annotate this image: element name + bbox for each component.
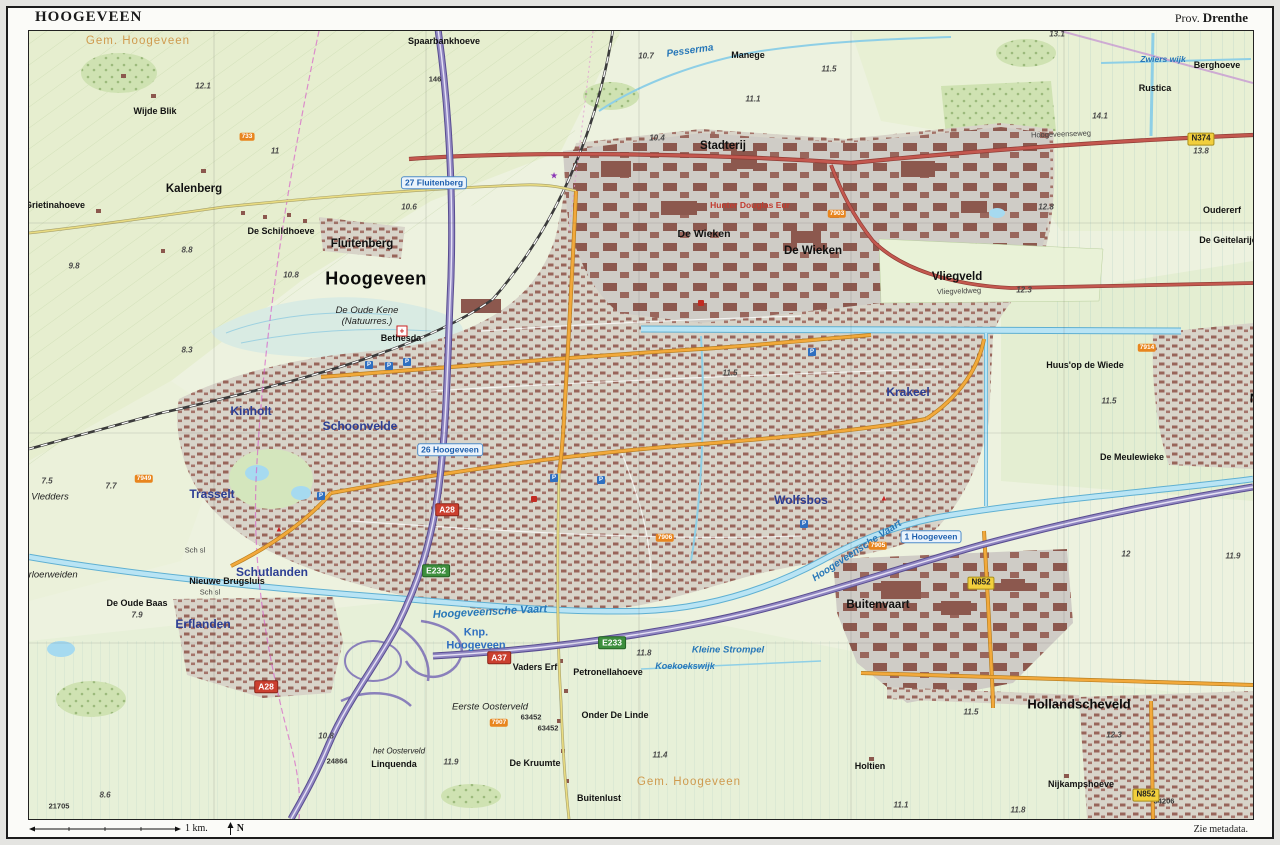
map-label-63452: 63452 <box>538 724 559 733</box>
map-label-kalenberg: Kalenberg <box>166 183 222 195</box>
road-shield-n374: N374 <box>1187 133 1214 146</box>
map-icon-poi <box>698 300 704 306</box>
map-icon-museum: ★ <box>550 171 558 182</box>
map-label-13-8: 13.8 <box>1193 147 1209 156</box>
map-label-schoonvelde: Schoonvelde <box>323 419 398 433</box>
map-label-holtien: Holtien <box>855 761 886 771</box>
road-shield-e233: E233 <box>598 636 626 649</box>
map-label-11-8: 11.8 <box>1011 806 1026 815</box>
map-label-trasselt: Trasselt <box>189 487 234 501</box>
map-icon-parking: P <box>808 348 816 356</box>
map-icon-camping: ▲ <box>880 494 888 503</box>
road-shield-7905: 7905 <box>869 542 887 550</box>
map-label-7-9: 7.9 <box>131 611 142 620</box>
map-label-9-8: 9.8 <box>68 262 79 271</box>
map-label-wolfsbos: Wolfsbos <box>774 493 828 507</box>
map-label-eerste-oosterveld: Eerste Oosterveld <box>452 703 528 714</box>
map-label-wijde-blik: Wijde Blik <box>134 106 177 116</box>
road-shield-7907: 7907 <box>490 719 508 727</box>
map-label-manege: Manege <box>731 50 765 60</box>
page-title: HOOGEVEEN <box>35 9 142 26</box>
map-label-nieuwe-brugsluis: Nieuwe Brugsluis <box>189 576 265 586</box>
map-label-hoogeveenseweg: Hoogeveenseweg <box>1031 128 1091 139</box>
north-arrow: N <box>226 822 244 835</box>
map-label-10-8: 10.8 <box>318 732 334 741</box>
map-label-arloerweiden: Arloerweiden <box>28 571 78 582</box>
map-label-12: 12 <box>1122 550 1131 559</box>
map-label-8-8: 8.8 <box>181 246 192 255</box>
road-shield-26-hoogeveen: 26 Hoogeveen <box>417 443 483 456</box>
map-label-stadterij: Stadterij <box>700 140 746 152</box>
road-shield-n852: N852 <box>1132 789 1159 802</box>
road-shield-7906: 7906 <box>656 534 674 542</box>
map-label-vledders: Vledders <box>31 493 69 504</box>
road-shield-1-hoogeveen: 1 Hoogeveen <box>901 530 962 543</box>
map-label-vliegveld: Vliegveld <box>932 271 983 283</box>
road-shield-7914: 7914 <box>1138 344 1156 352</box>
map-label-kleine-strompel: Kleine Strompel <box>692 645 764 656</box>
province-label: Prov. Drenthe <box>1175 10 1248 26</box>
map-label-gem-hoogeveen: Gem. Hoogeveen <box>86 35 190 47</box>
map-label-gem-hoogeveen: Gem. Hoogeveen <box>637 776 741 788</box>
map-label-vliegveldweg: Vliegveldweg <box>937 286 981 297</box>
map-label-huus-op-de-wiede: Huus'op de Wiede <box>1046 360 1124 370</box>
map-label-grietinahoeve: Grietinahoeve <box>28 200 85 210</box>
map-label-10-6: 10.6 <box>401 203 417 212</box>
map-label-de-kruumte: De Kruumte <box>509 758 560 768</box>
map-label-de-meulewieke: De Meulewieke <box>1100 452 1164 462</box>
map-label-koekoekswijk: Koekoekswijk <box>655 661 715 671</box>
province-name: Drenthe <box>1203 10 1248 25</box>
map-label-10-4: 10.4 <box>649 134 665 143</box>
map-label-schutlanden: Schutlanden <box>236 565 308 579</box>
map-icon-parking: P <box>385 362 393 370</box>
scale-bar: 1 km. N <box>29 822 244 835</box>
map-label-11-8: 11.8 <box>637 649 652 658</box>
map-label-petronellahoeve: Petronellahoeve <box>573 667 643 677</box>
scale-bar-line <box>29 824 181 834</box>
map-label-11-5: 11.5 <box>1102 397 1117 406</box>
map-label-24864: 24864 <box>327 757 348 766</box>
map-label-hoogeveensche-vaart: Hoogeveensche Vaart <box>432 603 547 621</box>
map-label-11-4: 11.4 <box>653 751 668 760</box>
map-label-12-3: 12.3 <box>1106 731 1122 740</box>
map-label-11-5: 11.5 <box>964 708 979 717</box>
map-label-11-5: 11.5 <box>822 65 837 74</box>
map-label-onder-de-linde: Onder De Linde <box>581 710 648 720</box>
road-shield-7949: 7949 <box>135 475 153 483</box>
scale-label: 1 km. <box>185 823 208 834</box>
road-shield-733: 733 <box>240 133 255 141</box>
map-label-de-oude-kene: De Oude Kene(Natuurres.) <box>336 306 399 328</box>
road-shield-a28: A28 <box>435 503 459 516</box>
map-icon-poi <box>531 496 537 502</box>
map-icon-parking: P <box>365 361 373 369</box>
map-label-146: 146 <box>429 75 442 84</box>
road-shield-a28: A28 <box>254 680 278 693</box>
map-label-63452: 63452 <box>521 713 542 722</box>
map-label-21705: 21705 <box>49 802 70 811</box>
map-label-de-wieken: De Wieken <box>784 245 842 257</box>
map-label-fluitenberg: Fluitenberg <box>331 238 394 250</box>
north-arrow-icon <box>226 822 235 835</box>
map-label-hoogeveensche-vaart: Hoogeveensche Vaart <box>810 518 903 584</box>
map-label-hunter-douglas-eur: Hunter Douglas Eur <box>710 200 790 210</box>
map-label-sch-sl: Sch sl <box>200 588 220 597</box>
map-canvas: Gem. HoogeveenGem. HoogeveenHoogeveenHol… <box>28 30 1254 820</box>
map-label-buitenvaart: Buitenvaart <box>846 599 909 611</box>
map-label-noordscheschut: Noordscheschut <box>1250 391 1254 406</box>
map-icon-parking: P <box>403 358 411 366</box>
metadata-note: Zie metadata. <box>1194 824 1248 835</box>
road-shield-a37: A37 <box>487 651 511 664</box>
map-label-buitenlust: Buitenlust <box>577 793 621 803</box>
map-label-pesserma: Pesserma <box>666 42 714 59</box>
map-label-14-1: 14.1 <box>1092 112 1108 121</box>
map-label-kinholt: Kinholt <box>230 404 271 418</box>
map-icon-camping: ▲ <box>275 525 283 534</box>
map-label-11-5: 11.5 <box>723 369 738 378</box>
map-label-hoogeveen-city: Hoogeveen <box>325 269 427 290</box>
map-icon-parking: P <box>800 520 808 528</box>
road-shield-7903: 7903 <box>828 210 846 218</box>
map-label-oudererf: Oudererf <box>1203 205 1241 215</box>
road-shield-e232: E232 <box>422 564 450 577</box>
map-label-het-oosterveld: het Oosterveld <box>373 746 425 755</box>
map-label-de-oude-baas: De Oude Baas <box>106 598 167 608</box>
map-icon-hospital: + <box>397 326 408 337</box>
map-label-7-5: 7.5 <box>41 477 52 486</box>
map-label-13-1: 13.1 <box>1049 30 1065 39</box>
map-label-8-3: 8.3 <box>181 346 192 355</box>
map-label-8-6: 8.6 <box>99 791 110 800</box>
map-label-10-8: 10.8 <box>283 271 299 280</box>
map-label-sch-sl: Sch sl <box>185 546 205 555</box>
map-label-zwiers-wijk: Zwiers wijk <box>1140 54 1185 64</box>
map-label-12-8: 12.8 <box>1038 203 1054 212</box>
map-label-bethesda: Bethesda <box>381 333 422 343</box>
map-label-knp-hoogeveen: Knp.Hoogeveen <box>446 626 505 651</box>
map-label-7-7: 7.7 <box>105 482 116 491</box>
road-shield-n852: N852 <box>967 577 994 590</box>
map-label-de-wieken: De Wieken <box>677 228 730 240</box>
map-label-hollandscheveld: Hollandscheveld <box>1027 697 1130 712</box>
map-icon-parking: P <box>317 492 325 500</box>
map-icon-parking: P <box>550 474 558 482</box>
map-label-linquenda: Linquenda <box>371 759 417 769</box>
map-label-11-9: 11.9 <box>444 758 459 767</box>
north-label: N <box>237 823 244 834</box>
map-label-34206: 34206 <box>1154 797 1175 806</box>
map-label-11-9: 11.9 <box>1226 552 1241 561</box>
map-label-berghoeve: Berghoeve <box>1194 60 1241 70</box>
map-label-nijkampshoeve: Nijkampshoeve <box>1048 779 1114 789</box>
label-layer: Gem. HoogeveenGem. HoogeveenHoogeveenHol… <box>29 31 1253 819</box>
map-label-10-7: 10.7 <box>638 52 654 61</box>
map-label-11-1: 11.1 <box>894 801 909 810</box>
road-shield-27-fluitenberg: 27 Fluitenberg <box>401 176 467 189</box>
map-icon-parking: P <box>597 476 605 484</box>
map-label-vaders-erf: Vaders Erf <box>513 662 558 672</box>
map-label-spaarbankhoeve: Spaarbankhoeve <box>408 36 480 46</box>
map-label-11-1: 11.1 <box>746 95 761 104</box>
map-label-11: 11 <box>271 147 279 156</box>
map-label-12-3: 12.3 <box>1016 286 1032 295</box>
map-label-krakeel: Krakeel <box>886 385 929 399</box>
map-label-de-geitelarije: De Geitelarije <box>1199 235 1254 245</box>
province-prefix: Prov. <box>1175 11 1200 25</box>
map-label-rustica: Rustica <box>1139 83 1172 93</box>
map-label-de-schildhoeve: De Schildhoeve <box>247 226 314 236</box>
map-label-erflanden: Erflanden <box>175 617 230 631</box>
map-label-12-1: 12.1 <box>195 82 211 91</box>
